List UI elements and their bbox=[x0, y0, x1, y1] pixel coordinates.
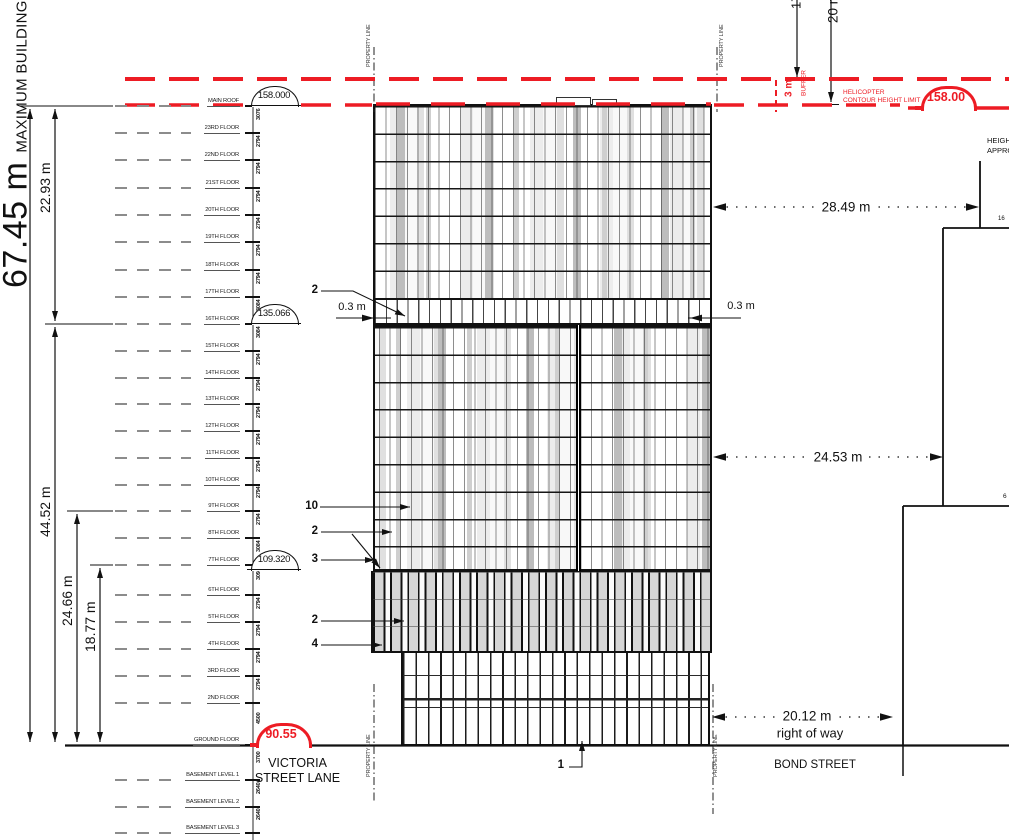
callout-number: 1 bbox=[530, 759, 564, 771]
floor-dash-line bbox=[115, 510, 191, 512]
floor-tick bbox=[245, 702, 260, 703]
floor-label: 9TH FLOOR bbox=[207, 503, 240, 512]
floor-label: 11TH FLOOR bbox=[205, 450, 240, 459]
neighbor-label-16: 16 bbox=[998, 216, 1005, 222]
floor-label: 15TH FLOOR bbox=[204, 343, 240, 352]
floor-tick bbox=[245, 187, 260, 188]
setback-label-right: 0.3 m bbox=[727, 300, 755, 312]
floor-tick bbox=[245, 377, 260, 378]
floor-label: MAIN ROOF bbox=[207, 98, 240, 107]
distance-dimension-label: 20.12 m bbox=[780, 709, 835, 724]
floor-dash-line bbox=[115, 132, 191, 134]
witness-lines bbox=[20, 105, 839, 566]
callout-leaders bbox=[320, 291, 582, 767]
elevation-drawing: 67.45 m MAXIMUM BUILDING HEIGHT 0.3 m 0.… bbox=[0, 0, 1009, 840]
floor-label: 13TH FLOOR bbox=[204, 396, 240, 405]
callout-number: 2 bbox=[284, 284, 318, 296]
floor-label: GROUND FLOOR bbox=[193, 737, 240, 746]
callout-number: 2 bbox=[284, 525, 318, 537]
floor-dash-line bbox=[115, 648, 191, 650]
floor-label: 4TH FLOOR bbox=[207, 641, 240, 650]
floor-label: 16TH FLOOR bbox=[204, 316, 240, 325]
floor-label: BASEMENT LEVEL 2 bbox=[185, 799, 240, 808]
floor-tick bbox=[245, 537, 260, 538]
floor-label: BASEMENT LEVEL 3 bbox=[185, 825, 240, 834]
floor-dash-line bbox=[115, 187, 191, 189]
floor-label: 18TH FLOOR bbox=[204, 262, 240, 271]
floor-dash-line bbox=[115, 457, 191, 459]
floor-tick bbox=[245, 648, 260, 649]
linework bbox=[0, 0, 1009, 840]
elevation-marker-base bbox=[247, 323, 301, 324]
floor-label: 3RD FLOOR bbox=[207, 668, 240, 677]
floor-dash-line bbox=[115, 105, 191, 107]
floor-label: 19TH FLOOR bbox=[204, 234, 240, 243]
floor-label: 2ND FLOOR bbox=[207, 695, 240, 704]
floor-dash-line bbox=[115, 350, 191, 352]
floor-dash-line bbox=[115, 484, 191, 486]
property-lines bbox=[374, 47, 717, 814]
floor-tick bbox=[245, 510, 260, 511]
helicopter-note-line1: HELICOPTER bbox=[843, 89, 920, 97]
floor-tick bbox=[245, 594, 260, 595]
elevation-marker-value: 109.320 bbox=[248, 554, 300, 565]
floor-label: 22ND FLOOR bbox=[204, 152, 240, 161]
floor-dash-line bbox=[115, 779, 173, 781]
victoria-street-lane-label: VICTORIA STREET LANE bbox=[250, 756, 345, 786]
floor-label: 14TH FLOOR bbox=[204, 370, 240, 379]
floor-dash-line bbox=[115, 241, 191, 243]
dimension-arrowheads bbox=[362, 203, 979, 721]
floor-dash-line bbox=[115, 430, 191, 432]
floor-dash-line bbox=[115, 214, 191, 216]
floor-tick bbox=[245, 296, 260, 297]
floor-label: 20TH FLOOR bbox=[204, 207, 240, 216]
callout-number: 2 bbox=[284, 614, 318, 626]
adjacent-building-outline bbox=[903, 161, 1009, 745]
floor-tick bbox=[245, 269, 260, 270]
neighbor-label-6: 6 bbox=[1003, 493, 1007, 500]
floor-dash-line bbox=[115, 594, 191, 596]
floor-dash-line bbox=[115, 403, 191, 405]
floor-label: BASEMENT LEVEL 1 bbox=[185, 772, 240, 781]
floor-tick bbox=[245, 132, 260, 133]
floor-dash-line bbox=[115, 564, 191, 566]
elevation-marker-value: 135.066 bbox=[248, 308, 300, 319]
elevation-marker-base bbox=[247, 105, 301, 106]
setback-label-left: 0.3 m bbox=[338, 301, 366, 313]
floor-dash-line bbox=[115, 621, 191, 623]
floor-label: 17TH FLOOR bbox=[204, 289, 240, 298]
floor-dash-line bbox=[115, 806, 173, 808]
floor-label: 21ST FLOOR bbox=[205, 180, 240, 189]
elevation-marker-base bbox=[247, 569, 301, 570]
elevation-marker-value: 158.000 bbox=[248, 90, 300, 101]
floor-tick bbox=[245, 430, 260, 431]
floor-label: 8TH FLOOR bbox=[207, 530, 240, 539]
floor-tick bbox=[245, 675, 260, 676]
distance-dimension-label: 28.49 m bbox=[819, 200, 874, 215]
max-height-caption: MAXIMUM BUILDING HEIGHT bbox=[14, 0, 31, 153]
floor-tick bbox=[245, 832, 260, 833]
floor-label: 7TH FLOOR bbox=[207, 557, 240, 566]
floor-dash-line bbox=[115, 159, 191, 161]
floor-tick bbox=[245, 159, 260, 160]
floor-label: 6TH FLOOR bbox=[207, 587, 240, 596]
floor-label: 5TH FLOOR bbox=[207, 614, 240, 623]
floor-tick bbox=[245, 403, 260, 404]
floor-tick bbox=[245, 621, 260, 622]
floor-tick bbox=[245, 214, 260, 215]
floor-dash-line bbox=[115, 537, 191, 539]
callout-number: 4 bbox=[284, 638, 318, 650]
floor-tick bbox=[245, 457, 260, 458]
floor-dash-line bbox=[115, 323, 191, 325]
floor-dash-line bbox=[115, 702, 191, 704]
floor-tick bbox=[245, 350, 260, 351]
floor-dash-line bbox=[115, 675, 191, 677]
floor-dash-line bbox=[115, 832, 173, 834]
elevation-marker-value: 90.55 bbox=[253, 727, 309, 741]
right-of-way-label: right of way bbox=[777, 726, 843, 741]
floor-tick bbox=[245, 806, 260, 807]
callout-number: 10 bbox=[284, 500, 318, 512]
distance-dimension-label: 24.53 m bbox=[811, 450, 866, 465]
neighbor-height-note: HEIGHT APPROV bbox=[987, 136, 1009, 155]
floor-label: 12TH FLOOR bbox=[204, 423, 240, 432]
floor-tick bbox=[245, 484, 260, 485]
floor-dash-line bbox=[115, 269, 191, 271]
bond-street-label: BOND STREET bbox=[765, 758, 865, 773]
helicopter-note-line2: CONTOUR HEIGHT LIMIT bbox=[843, 97, 920, 105]
elevation-marker-value: 158.00 bbox=[918, 90, 974, 104]
floor-tick bbox=[245, 241, 260, 242]
floor-dash-line bbox=[115, 296, 191, 298]
floor-label: 10TH FLOOR bbox=[204, 477, 240, 486]
floor-label: 23RD FLOOR bbox=[204, 125, 240, 134]
helicopter-limit-note: HELICOPTER CONTOUR HEIGHT LIMIT bbox=[843, 89, 920, 105]
max-height-value: 67.45 m bbox=[0, 162, 36, 288]
floor-dash-line bbox=[115, 377, 191, 379]
